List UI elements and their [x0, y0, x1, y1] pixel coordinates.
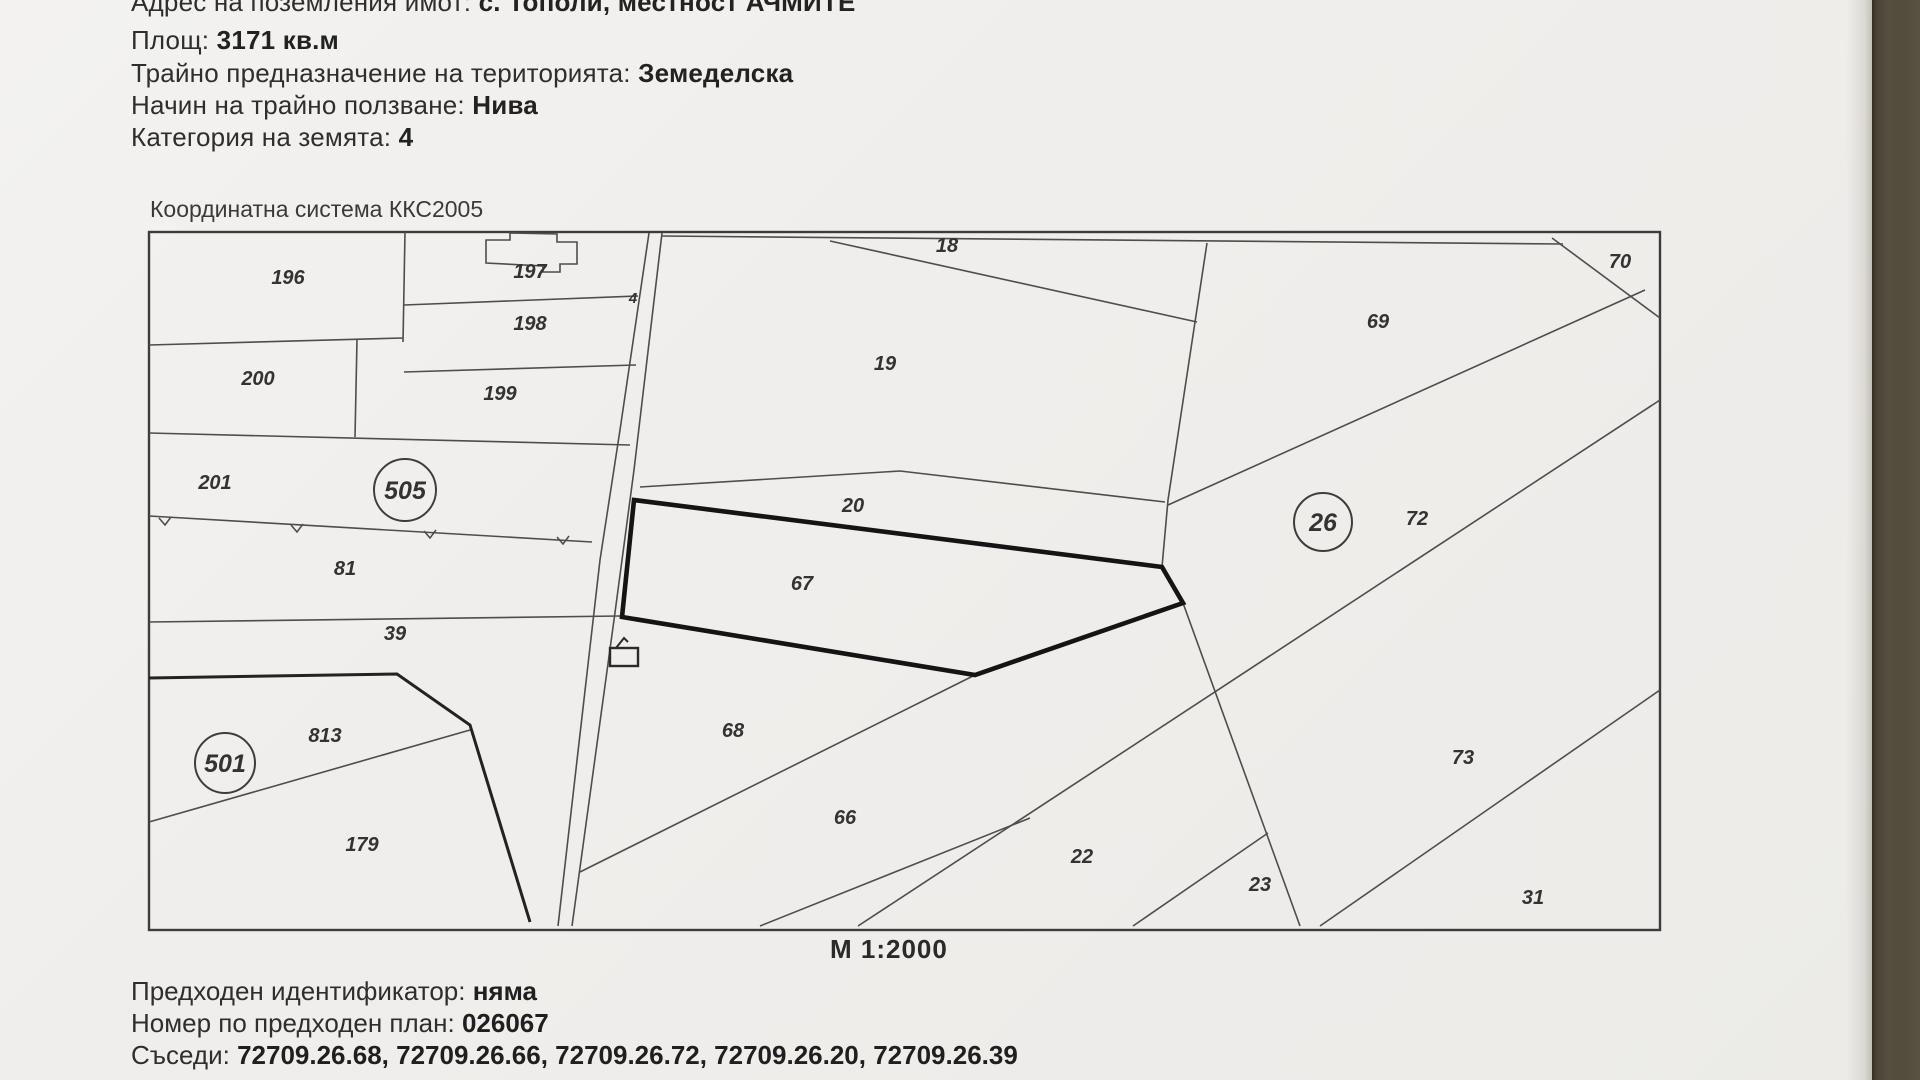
parcel-label-20: 20 — [841, 495, 864, 517]
parcel-label-813: 813 — [308, 725, 341, 747]
parcel-labels: 1961971982001992018139813179418192067686… — [197, 235, 1631, 909]
neighbors-label: Съседи: — [131, 1040, 230, 1070]
parcel-label-197: 197 — [513, 261, 547, 283]
parcel-label-69: 69 — [1367, 311, 1390, 333]
previous-plan-number-label: Номер по предходен план: — [131, 1008, 455, 1038]
paper-edge-shadow — [1846, 0, 1872, 1080]
neighbors-line: Съседи: 72709.26.68, 72709.26.66, 72709.… — [131, 1040, 1018, 1071]
parcel-label-67: 67 — [791, 573, 814, 595]
parcel-label-72: 72 — [1406, 508, 1428, 530]
previous-identifier-value: няма — [473, 976, 537, 1006]
neighbors-value: 72709.26.68, 72709.26.66, 72709.26.72, 7… — [237, 1040, 1018, 1070]
previous-plan-number-line: Номер по предходен план: 026067 — [131, 1008, 549, 1039]
parcel-label-201: 201 — [197, 472, 231, 494]
map-scale-label: М 1:2000 — [830, 934, 948, 965]
map-frame — [149, 232, 1660, 930]
parcel-boundaries-right — [580, 236, 1660, 926]
parcel-label-199: 199 — [483, 383, 517, 405]
previous-plan-number-value: 026067 — [462, 1008, 549, 1038]
parcel-label-31: 31 — [1522, 887, 1544, 909]
parcel-label-81: 81 — [334, 558, 356, 580]
block-label-26: 26 — [1308, 509, 1338, 537]
block-label-505: 505 — [384, 477, 427, 505]
parcel-label-68: 68 — [722, 720, 745, 742]
previous-identifier-label: Предходен идентификатор: — [131, 976, 465, 1006]
parcel-label-22: 22 — [1070, 846, 1093, 868]
parcel-label-70: 70 — [1609, 251, 1631, 273]
road-boundary — [558, 233, 662, 926]
parcel-label-179: 179 — [345, 834, 379, 856]
parcel-label-23: 23 — [1248, 874, 1271, 896]
parcel-label-4: 4 — [628, 290, 638, 307]
scan-background-edge — [1872, 0, 1920, 1080]
parcel-label-73: 73 — [1452, 747, 1474, 769]
cadastral-map: 1961971982001992018139813179418192067686… — [0, 0, 1920, 1080]
subject-parcel-67-boundary — [622, 500, 1183, 675]
parcel-label-39: 39 — [384, 623, 407, 645]
parcel-label-66: 66 — [834, 807, 857, 829]
parcel-813-boundary — [149, 674, 530, 922]
parcel-label-18: 18 — [936, 235, 959, 257]
parcel-label-198: 198 — [513, 313, 547, 335]
parcel-label-19: 19 — [874, 353, 897, 375]
parcel-label-196: 196 — [271, 267, 305, 289]
block-label-501: 501 — [204, 750, 246, 778]
landmark-symbol — [610, 638, 638, 666]
boundary-tick-marks — [159, 517, 569, 544]
previous-identifier-line: Предходен идентификатор: няма — [131, 976, 537, 1007]
circled-block-labels: 50526501 — [195, 459, 1352, 793]
cadastral-sketch-document: { "document": { "header_rows": [ {"label… — [0, 0, 1920, 1080]
parcel-label-200: 200 — [240, 368, 274, 390]
